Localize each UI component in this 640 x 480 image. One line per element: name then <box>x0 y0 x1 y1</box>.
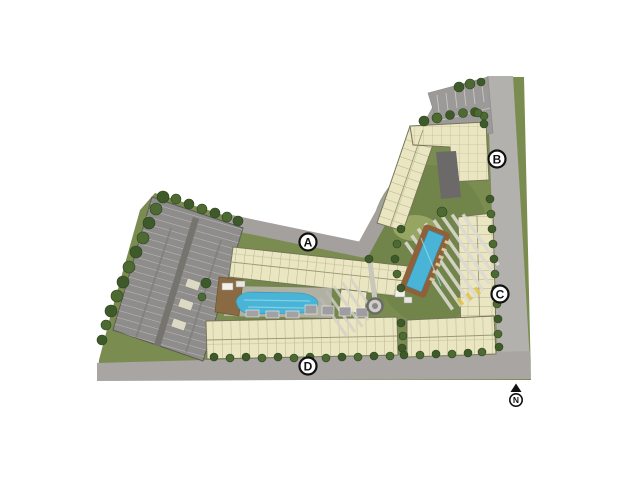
building-marker-b: B <box>489 151 506 168</box>
marker-c-letter: C <box>496 287 505 301</box>
site-plan-page: A B C D N <box>0 0 640 480</box>
site-plan-canvas: A B C D N <box>0 0 640 480</box>
building-marker-c: C <box>492 286 509 303</box>
building-marker-d: D <box>300 358 317 375</box>
marker-a-letter: A <box>304 235 313 249</box>
north-letter: N <box>513 395 519 405</box>
clubhouse-roof <box>236 281 245 287</box>
marker-d-letter: D <box>304 359 313 373</box>
marker-b-letter: B <box>493 152 502 166</box>
clubhouse-roof <box>222 283 233 290</box>
amenity-pavilion <box>404 297 412 303</box>
building-marker-a: A <box>300 234 317 251</box>
pool-cabanas <box>246 310 299 318</box>
